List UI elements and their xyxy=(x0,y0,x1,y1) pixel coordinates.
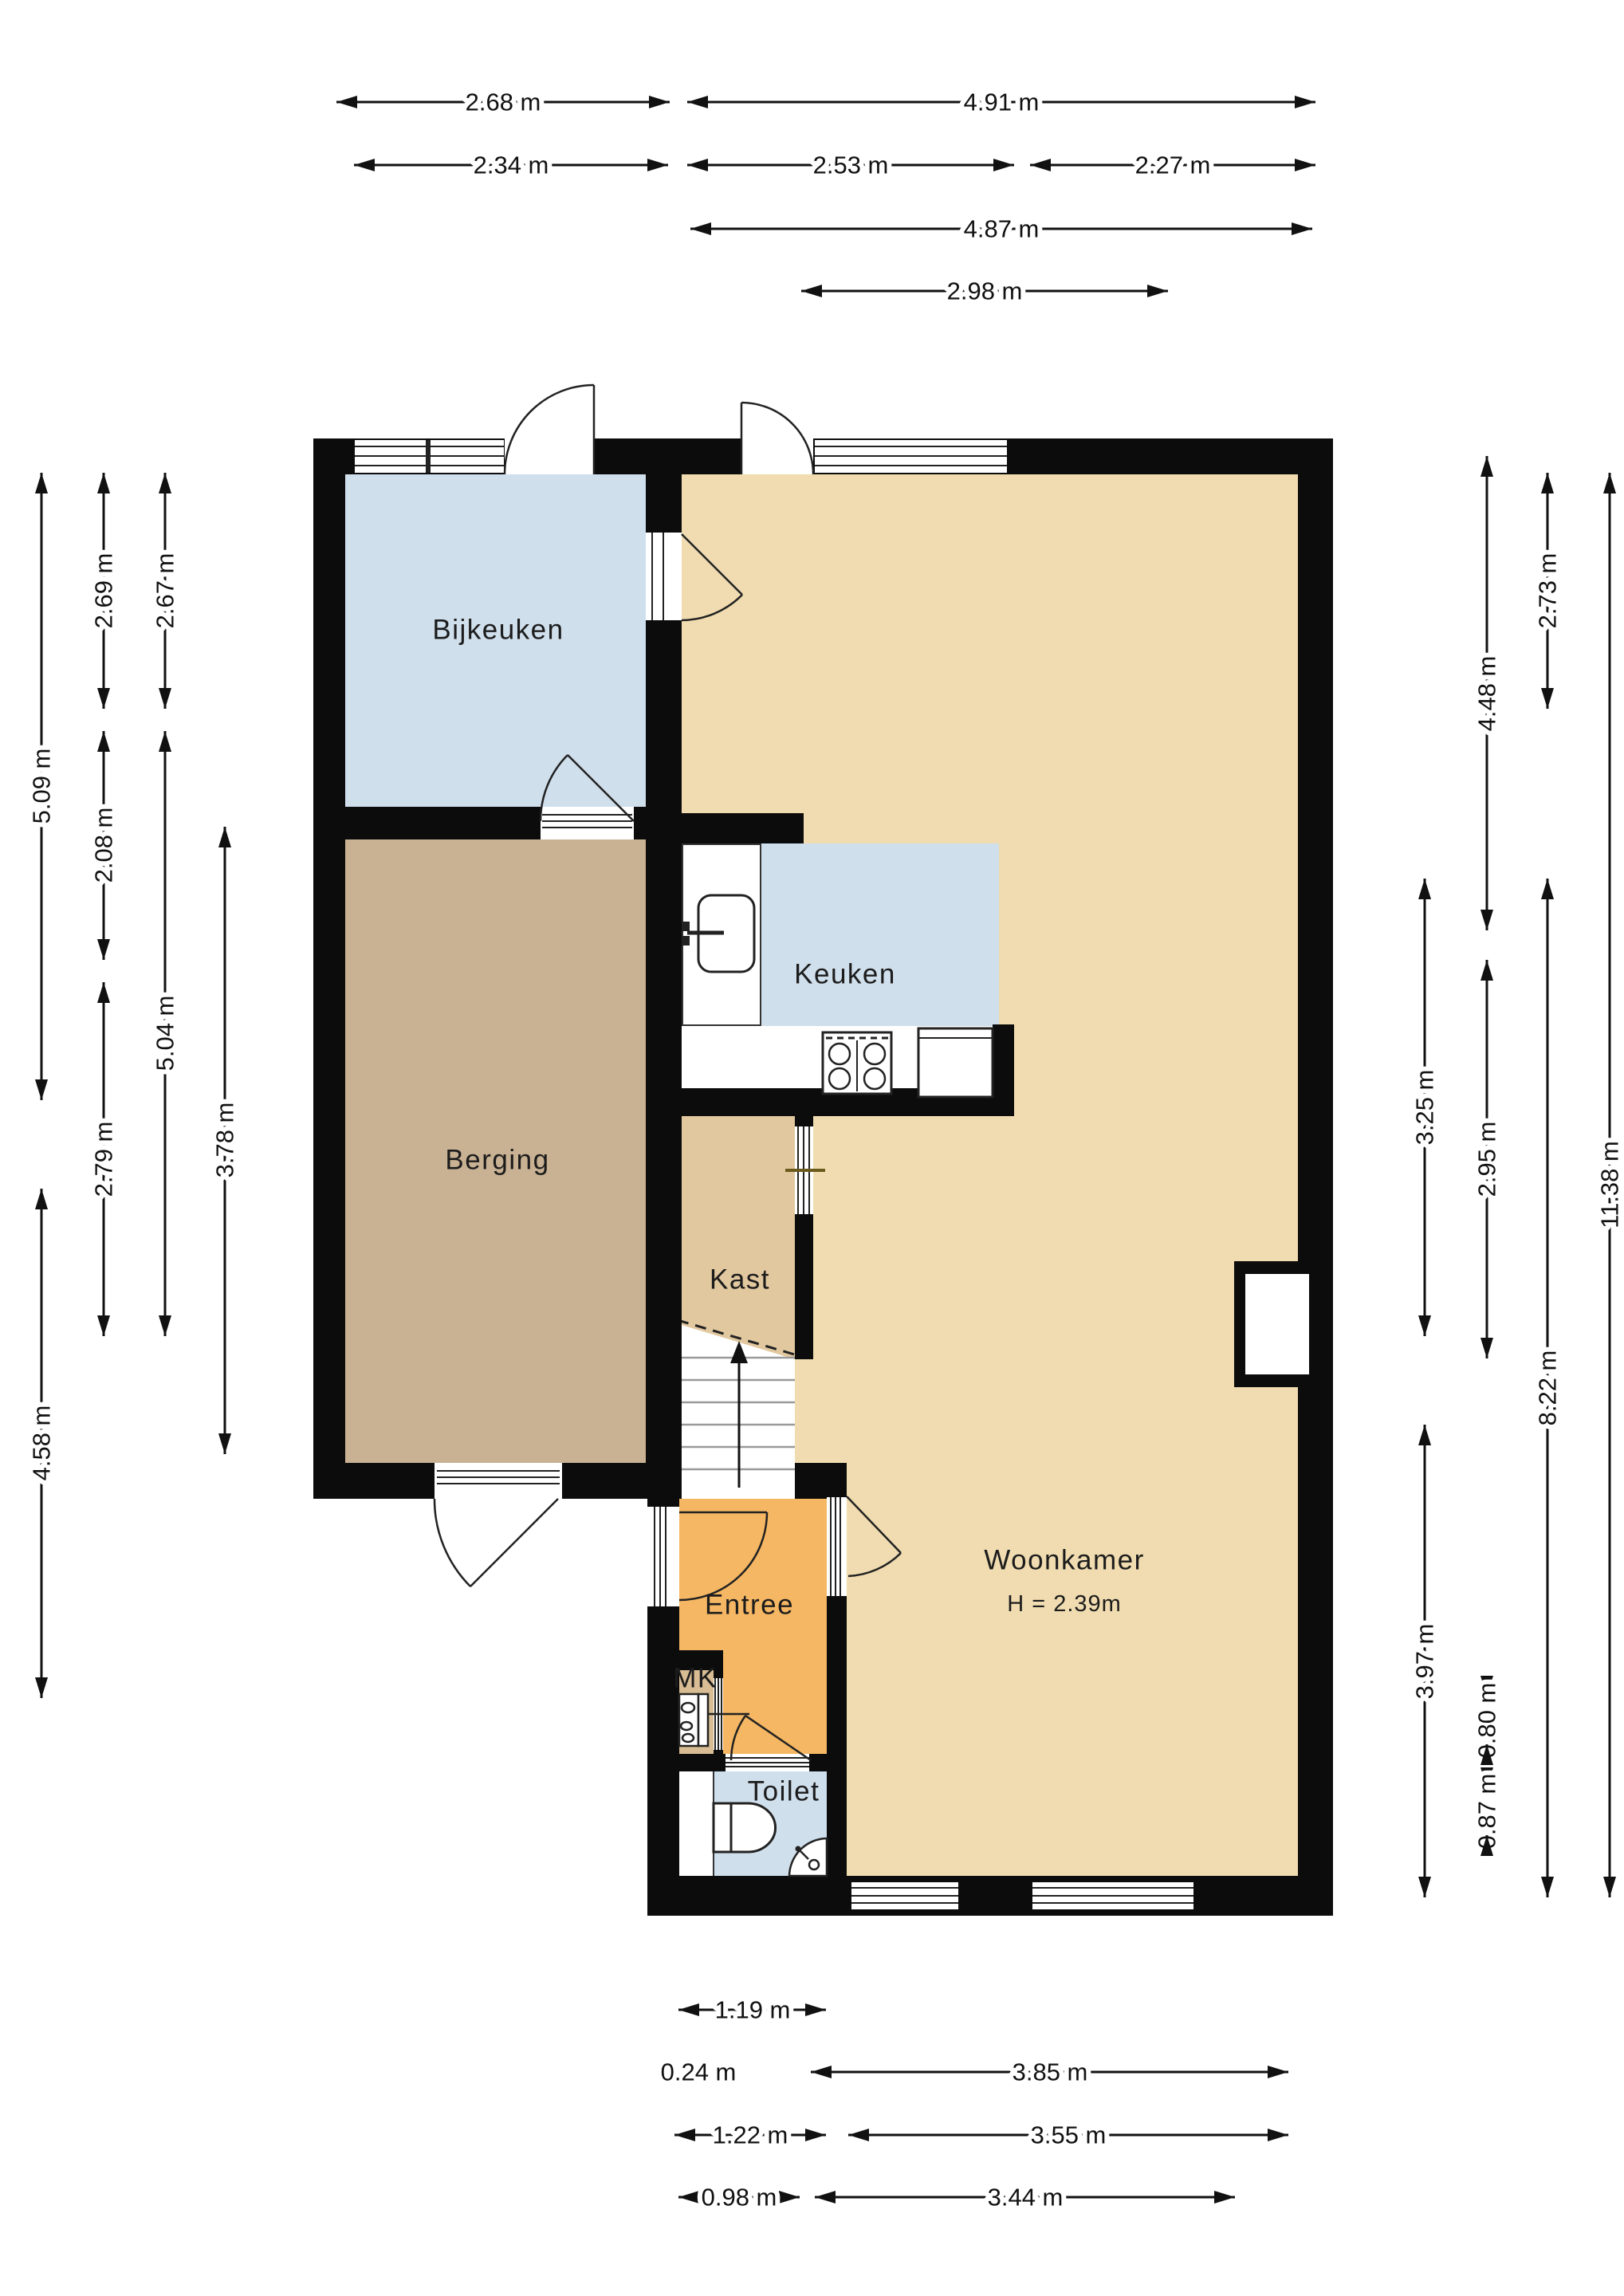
label-woonkamer: Woonkamer xyxy=(984,1545,1145,1576)
window-bijkeuken-top xyxy=(355,440,504,473)
dim-label: 2.79 m xyxy=(90,1122,118,1197)
label-entree: Entree xyxy=(705,1590,794,1621)
dim-label: 2.98 m xyxy=(947,277,1023,305)
wall-right xyxy=(1298,438,1333,1916)
label-keuken: Keuken xyxy=(794,959,896,990)
dimensions-left: 5.09 m 4.58 m 2.69 m 2.08 m 2.79 m 2.67 … xyxy=(28,473,239,1698)
label-kast: Kast xyxy=(710,1264,770,1295)
faucet-mount xyxy=(682,922,690,931)
wall-left xyxy=(313,438,345,1499)
dim-label: 3.78 m xyxy=(211,1103,239,1178)
dim-label: 2.34 m xyxy=(474,151,549,179)
dimensions-right: 3.25 m 3.97 m 4.48 m 2.95 m 2.73 m 8.22 … xyxy=(1411,456,1624,1897)
kitchen-appliance xyxy=(918,1028,993,1097)
floor-plan-page: Bijkeuken Keuken Berging Kast Entree Woo… xyxy=(0,0,1624,2296)
label-toilet: Toilet xyxy=(748,1776,820,1807)
wall-stairs-entree-connector xyxy=(795,1463,847,1499)
chimney-flue xyxy=(1245,1274,1309,1374)
dim-label: 5.09 m xyxy=(28,749,56,824)
dim-label: 3.85 m xyxy=(1013,2058,1088,2086)
dim-label: 4.48 m xyxy=(1473,656,1501,732)
dim-label: 3.55 m xyxy=(1031,2121,1107,2149)
stove-icon xyxy=(823,1032,891,1094)
wall-keuken-stub xyxy=(993,1024,1014,1116)
door-berging-exterior xyxy=(435,1463,562,1586)
label-woonkamer-height: H = 2.39m xyxy=(1007,1591,1122,1617)
dim-label: 0.24 m xyxy=(661,2058,737,2086)
toilet-bowl-icon xyxy=(714,1803,776,1852)
wall-divider xyxy=(646,474,682,1499)
dim-label: 2.53 m xyxy=(813,151,889,179)
dim-label: 3.97 m xyxy=(1411,1624,1439,1700)
dim-label: 2.27 m xyxy=(1135,151,1211,179)
label-bijkeuken: Bijkeuken xyxy=(432,615,564,646)
chimney xyxy=(1234,1261,1323,1387)
dim-label: 2.73 m xyxy=(1534,553,1562,629)
dim-label: 1.19 m xyxy=(715,1996,791,2024)
label-berging: Berging xyxy=(445,1145,549,1176)
door-woonkamer-exterior xyxy=(741,403,813,474)
floor-plan-drawing: Bijkeuken Keuken Berging Kast Entree Woo… xyxy=(0,0,1624,2296)
window-woonkamer-bottom-left xyxy=(851,1882,958,1909)
wall-above-keuken xyxy=(682,813,804,843)
dim-label: 2.95 m xyxy=(1473,1122,1501,1197)
dim-label: 4.91 m xyxy=(964,88,1040,116)
label-mk: MK xyxy=(673,1663,718,1694)
dim-label: 11.38 m xyxy=(1596,1141,1624,1229)
dim-label: 5.04 m xyxy=(151,996,179,1071)
dim-label: 1.22 m xyxy=(713,2121,788,2149)
faucet-mount xyxy=(682,936,690,946)
dim-label: 3.25 m xyxy=(1411,1070,1439,1146)
dim-label: 8.22 m xyxy=(1534,1350,1562,1426)
dim-label: 4.58 m xyxy=(28,1406,56,1481)
window-woonkamer-bottom-right xyxy=(1032,1882,1193,1909)
room-kast-area xyxy=(682,1116,795,1359)
dim-label: 2.69 m xyxy=(90,553,118,629)
dim-label: 2.68 m xyxy=(466,88,541,116)
dimensions-top: 2.68 m 4.91 m 2.34 m 2.53 m 2.27 m 4.87 … xyxy=(336,88,1315,305)
wall-bottom xyxy=(647,1876,1333,1916)
dim-label: 4.87 m xyxy=(964,215,1040,243)
dimensions-bottom: 1.19 m 0.24 m 3.85 m 1.22 m 3.55 m 0.98 … xyxy=(661,1996,1288,2211)
dim-label: 2.67 m xyxy=(151,553,179,629)
dim-label: 2.08 m xyxy=(90,808,118,883)
door-bijkeuken-exterior xyxy=(505,385,594,474)
dim-label: 0.98 m xyxy=(702,2184,777,2211)
dim-label: 3.44 m xyxy=(988,2184,1064,2211)
window-woonkamer-top xyxy=(815,440,1007,473)
toilet-duct-area xyxy=(679,1771,714,1876)
